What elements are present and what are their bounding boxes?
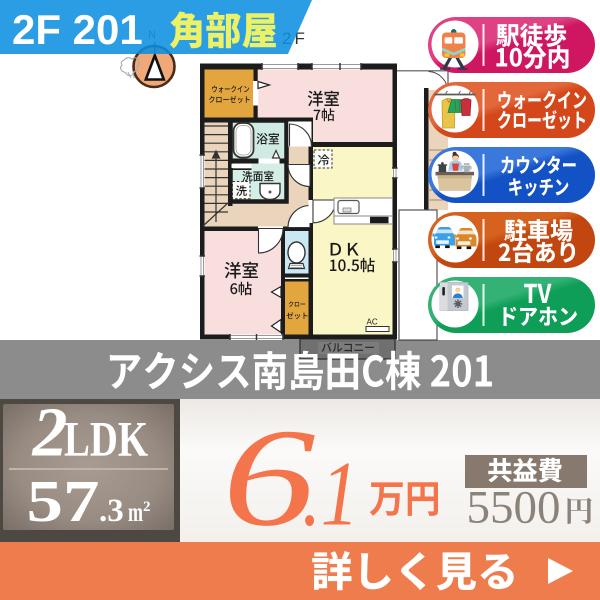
svg-text:5500: 5500 (467, 482, 561, 534)
svg-text:.3: .3 (99, 493, 124, 529)
svg-text:2F 201: 2F 201 (12, 6, 143, 53)
svg-text:m: m (128, 497, 143, 527)
svg-text:2: 2 (143, 499, 151, 515)
svg-text:57: 57 (27, 468, 100, 534)
svg-text:2: 2 (32, 395, 68, 472)
svg-text:LDK: LDK (64, 411, 148, 467)
svg-text:.1: .1 (302, 444, 359, 546)
svg-text:AC: AC (367, 318, 378, 327)
